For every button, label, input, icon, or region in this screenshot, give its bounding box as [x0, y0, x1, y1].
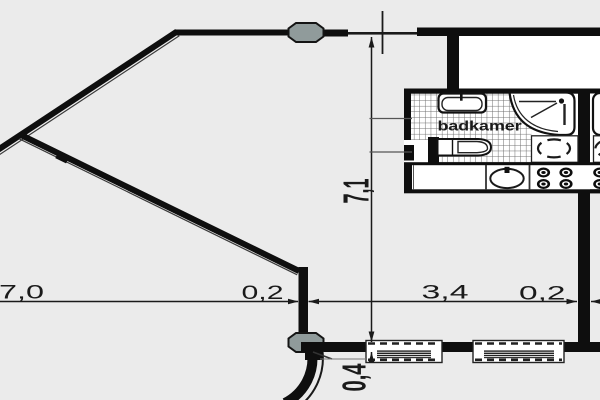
- svg-text:3,4: 3,4: [422, 282, 469, 304]
- svg-text:0,2: 0,2: [519, 283, 566, 305]
- svg-text:7,1: 7,1: [337, 179, 377, 204]
- svg-text:0,2: 0,2: [242, 282, 284, 304]
- svg-text:0,4: 0,4: [335, 364, 373, 392]
- svg-text:badkamer: badkamer: [438, 119, 522, 134]
- svg-text:7,0: 7,0: [0, 282, 44, 304]
